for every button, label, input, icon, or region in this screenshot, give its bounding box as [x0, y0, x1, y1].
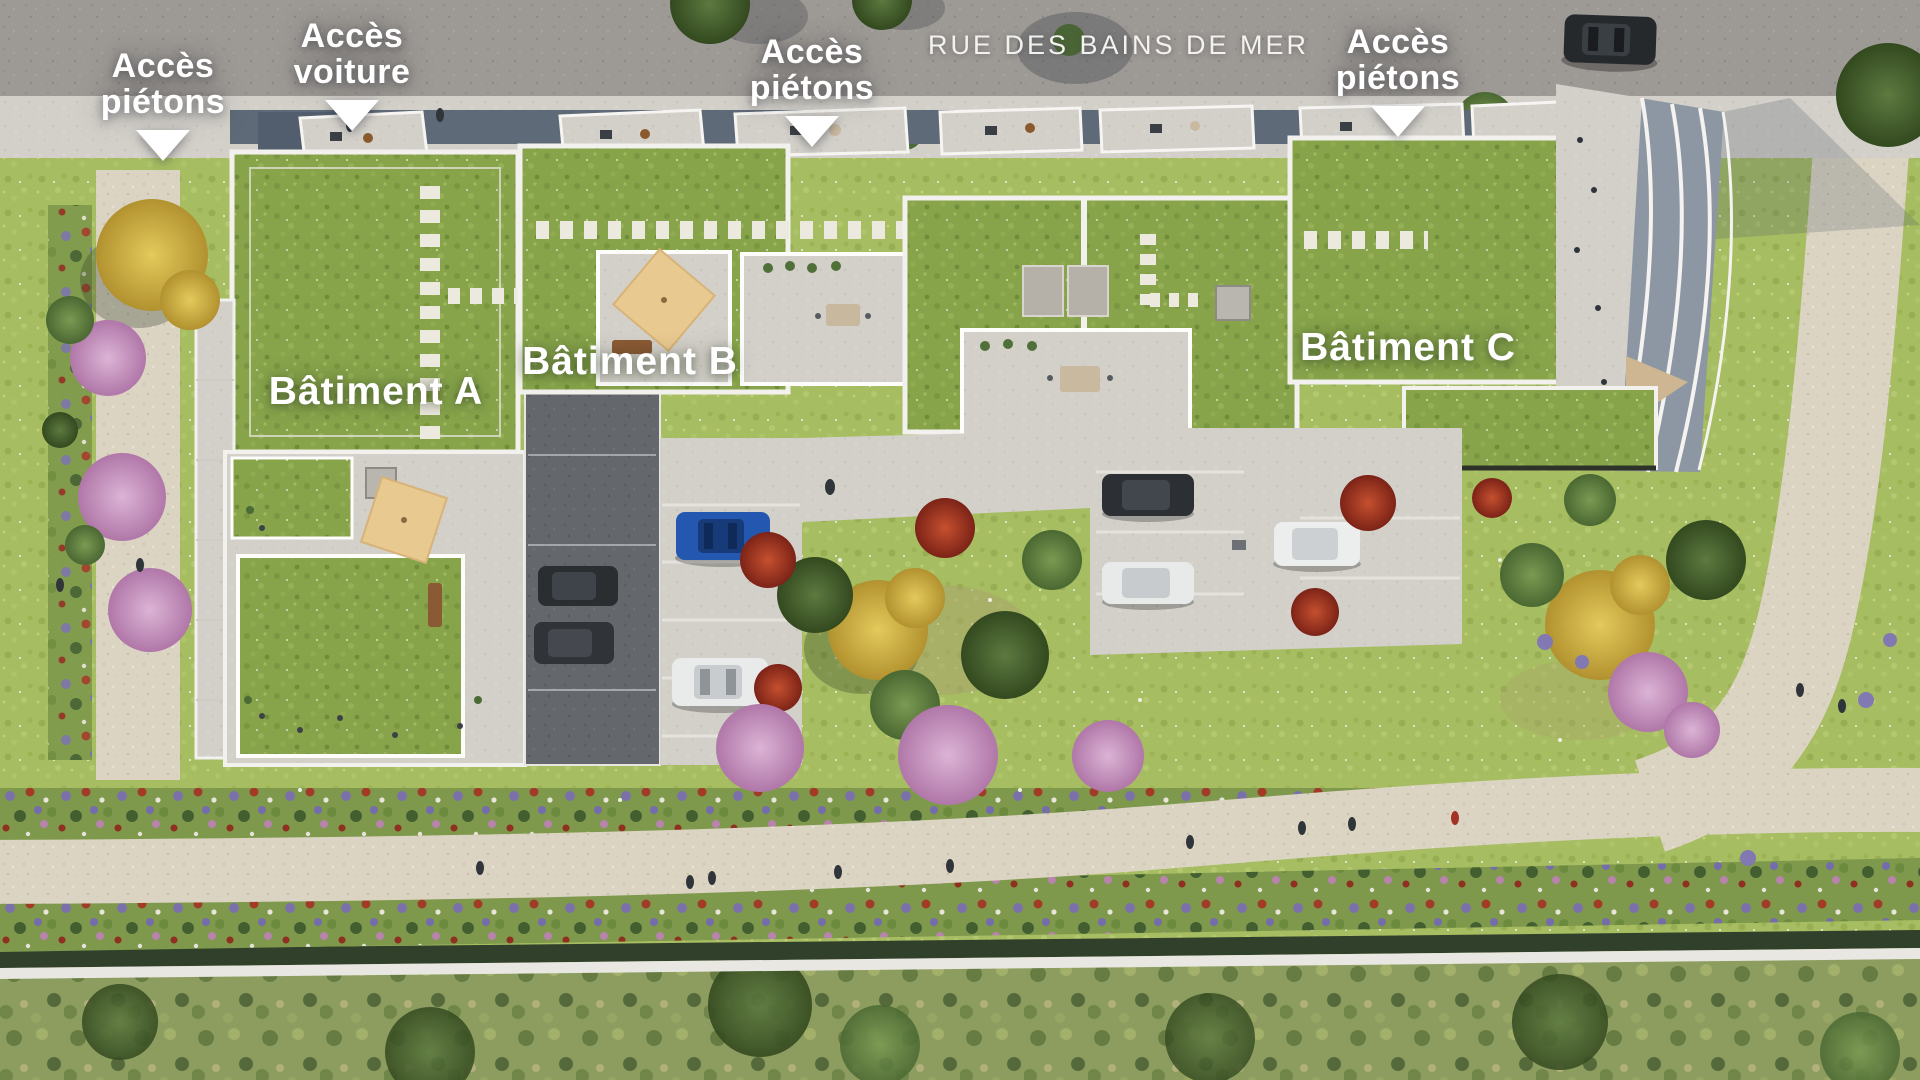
drain — [1232, 540, 1246, 550]
access-label-text: Accès piétons — [727, 34, 897, 106]
down-arrow-icon — [785, 116, 839, 147]
down-arrow-icon — [325, 100, 379, 131]
label-access-pedestrian-right: Accès piétons — [1313, 24, 1483, 137]
label-building-b: Bâtiment B — [522, 340, 738, 384]
down-arrow-icon — [136, 130, 190, 161]
gravel-skylight — [1023, 266, 1063, 316]
access-label-text: Accès piétons — [1313, 24, 1483, 96]
skylight — [1216, 286, 1250, 320]
parked-car-dark-2 — [534, 622, 614, 664]
label-access-pedestrian-left: Accès piétons — [78, 48, 248, 161]
parking-car-white-2 — [1273, 522, 1361, 572]
access-label-text: Accès voiture — [252, 18, 452, 90]
street-car-dark — [1561, 14, 1659, 73]
parked-car-dark-1 — [538, 566, 618, 606]
terrace-table — [428, 583, 442, 627]
gravel-skylight — [1068, 266, 1108, 316]
access-label-text: Accès piétons — [78, 48, 248, 120]
building-b-terrace-2 — [742, 254, 908, 384]
south-boundary — [0, 930, 1920, 1080]
label-building-a: Bâtiment A — [269, 370, 483, 414]
tree-pink — [716, 704, 804, 792]
label-access-car: Accès voiture — [252, 18, 452, 131]
red-flower-bush — [740, 532, 796, 588]
driveway — [525, 390, 660, 765]
label-access-pedestrian-center: Accès piétons — [727, 34, 897, 147]
building-a — [196, 152, 525, 765]
site-plan-render — [0, 0, 1920, 1080]
masterplan-screenshot: Accès piétons Accès voiture Accès piéton… — [0, 0, 1920, 1080]
building-mid-roofs — [905, 198, 1297, 444]
down-arrow-icon — [1371, 106, 1425, 137]
parking-car-dark-3 — [1102, 474, 1194, 522]
street-name-label: RUE DES BAINS DE MER — [928, 30, 1309, 61]
parking-car-white-3 — [1102, 562, 1194, 610]
label-building-c: Bâtiment C — [1300, 326, 1516, 370]
